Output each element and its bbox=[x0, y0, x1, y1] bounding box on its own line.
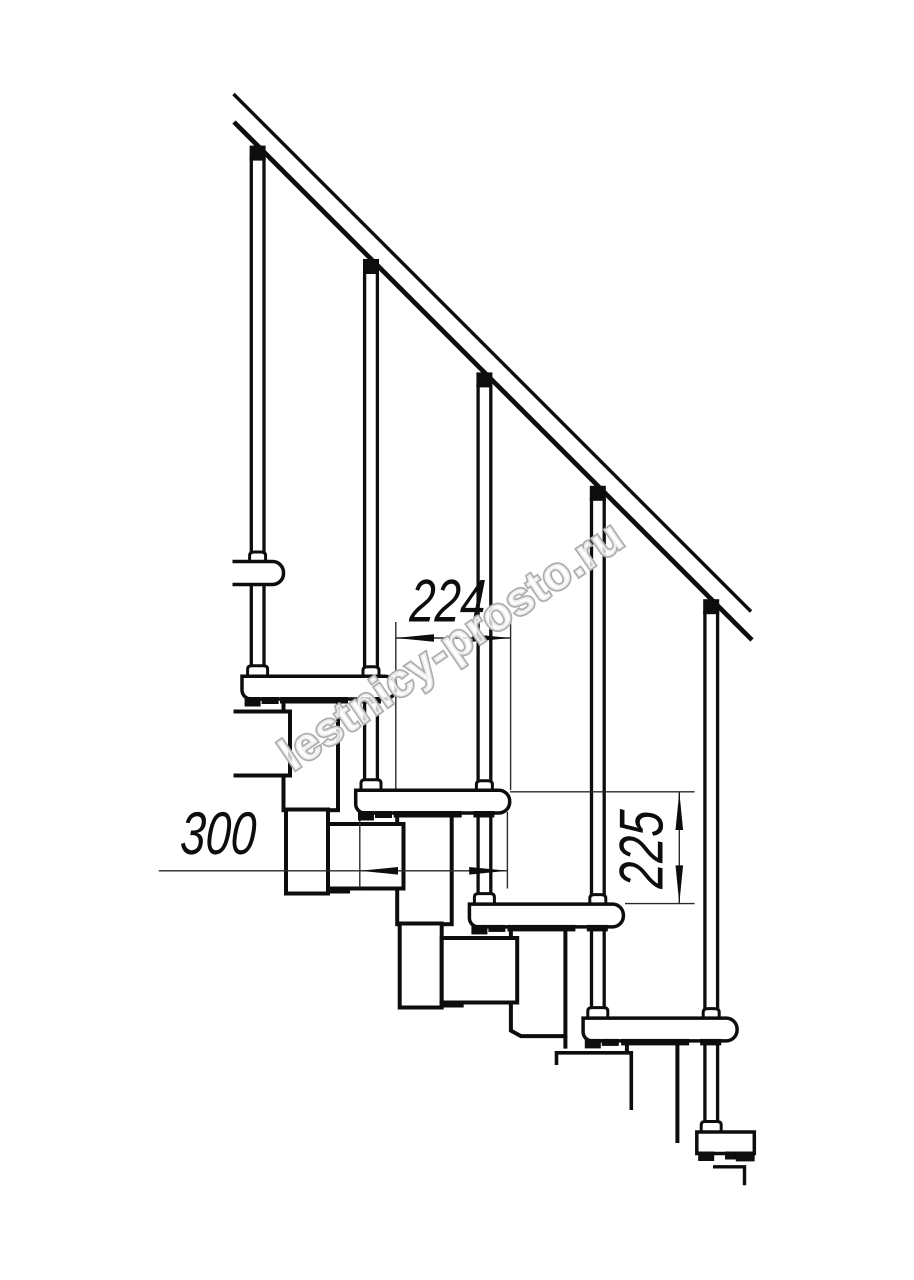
svg-text:300: 300 bbox=[179, 799, 258, 867]
svg-text:225: 225 bbox=[608, 808, 677, 890]
